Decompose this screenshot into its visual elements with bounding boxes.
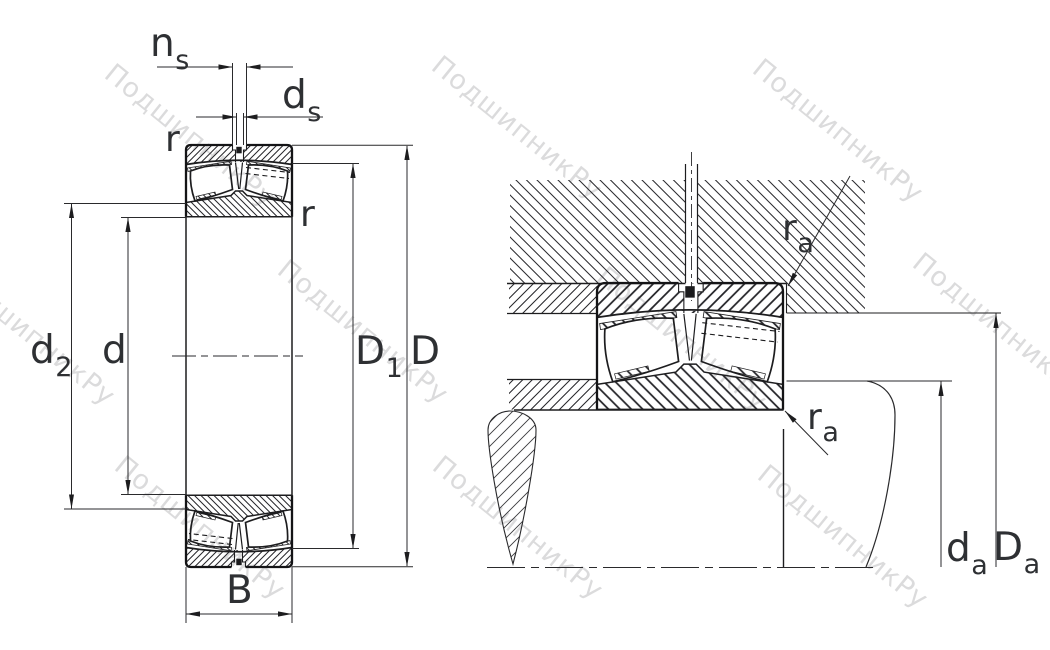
mounting-arrangement-view <box>487 152 1001 568</box>
dim-da <box>938 381 943 567</box>
label-r-outer: r <box>165 122 180 158</box>
label-D: D <box>410 332 440 371</box>
drawing-page: ns ds r r d2 d D1 D B ra ra da Da Подшип… <box>0 0 1050 650</box>
cover-band-lower <box>507 380 597 410</box>
label-ra-housing: ra <box>782 211 813 247</box>
label-d: d <box>102 331 127 370</box>
label-D1: D1 <box>355 332 402 371</box>
lubrication-feature-extension-lines <box>233 63 247 145</box>
label-ra-shaft: ra <box>807 400 838 436</box>
bearing-section-mounted <box>597 283 783 409</box>
shaft-groove-section <box>488 411 536 564</box>
shaft-profile-curve <box>866 381 895 567</box>
label-ds: ds <box>282 76 321 115</box>
label-da: da <box>946 529 987 568</box>
label-Da: Da <box>993 528 1040 567</box>
bearing-section-top <box>186 145 292 217</box>
label-ns: ns <box>150 24 189 63</box>
bearing-section-bottom <box>186 495 292 567</box>
label-B: B <box>226 571 253 610</box>
label-d2: d2 <box>30 331 72 370</box>
cover-band-upper <box>507 284 597 314</box>
label-r-inner: r <box>300 197 315 233</box>
technical-drawing-canvas <box>0 0 1050 650</box>
